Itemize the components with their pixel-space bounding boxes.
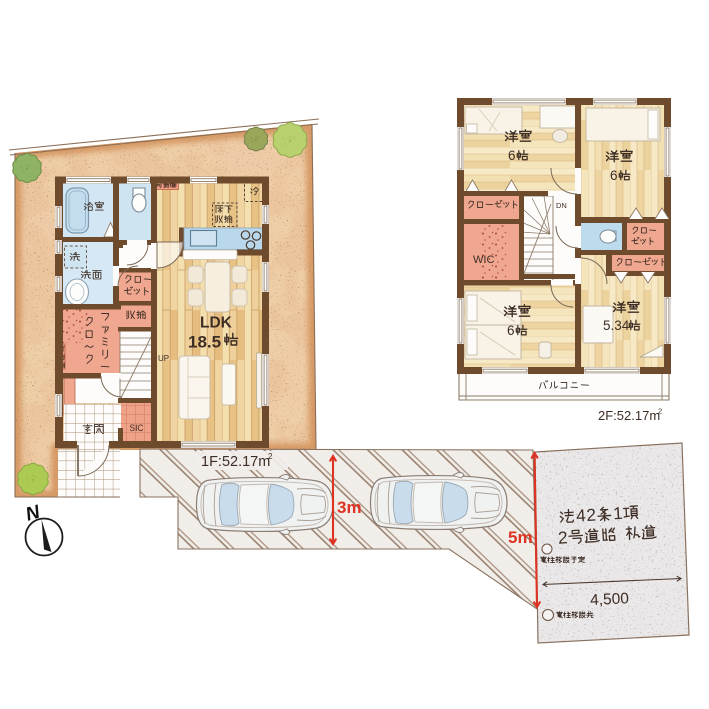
svg-text:LDK: LDK xyxy=(200,315,233,332)
svg-text:WIC: WIC xyxy=(473,254,494,266)
svg-text:1F:52.17m: 1F:52.17m xyxy=(201,454,270,470)
svg-text:DN: DN xyxy=(556,201,567,210)
svg-text:2: 2 xyxy=(557,527,568,548)
svg-text:5.34: 5.34 xyxy=(603,318,630,333)
svg-text:6: 6 xyxy=(610,168,618,183)
svg-text:3m: 3m xyxy=(337,498,362,517)
svg-text:5m: 5m xyxy=(508,528,533,547)
svg-text:1: 1 xyxy=(613,503,624,524)
svg-text:18.5: 18.5 xyxy=(188,333,221,352)
svg-text:6: 6 xyxy=(507,323,515,338)
svg-text:2: 2 xyxy=(268,452,273,461)
svg-text:4,500: 4,500 xyxy=(590,590,630,609)
svg-text:2F:52.17m: 2F:52.17m xyxy=(598,408,660,423)
svg-text:2: 2 xyxy=(586,504,597,525)
svg-text:UP: UP xyxy=(158,354,169,363)
svg-text:2: 2 xyxy=(658,407,662,416)
svg-text:6: 6 xyxy=(508,148,516,163)
svg-text:SIC: SIC xyxy=(130,423,144,434)
